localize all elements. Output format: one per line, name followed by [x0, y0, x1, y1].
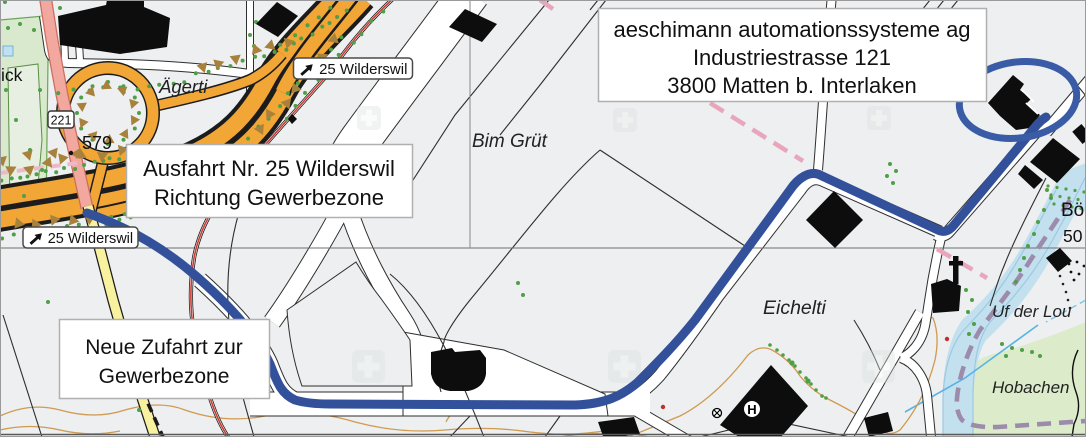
svg-text:Eichelti: Eichelti: [763, 297, 827, 319]
svg-text:221: 221: [51, 114, 72, 128]
svg-text:Richtung Gewerbezone: Richtung Gewerbezone: [154, 185, 384, 210]
svg-text:25 Wilderswil: 25 Wilderswil: [319, 61, 407, 78]
svg-text:Hobachen: Hobachen: [992, 378, 1070, 397]
svg-text:579: 579: [82, 133, 112, 153]
svg-text:Bö: Bö: [1061, 200, 1084, 221]
svg-text:Uf der Lou: Uf der Lou: [992, 302, 1072, 321]
svg-text:3800 Matten b. Interlaken: 3800 Matten b. Interlaken: [667, 73, 917, 98]
svg-text:Neue Zufahrt zur: Neue Zufahrt zur: [85, 336, 243, 359]
svg-text:Industriestrasse 121: Industriestrasse 121: [693, 45, 891, 70]
svg-text:50: 50: [1063, 226, 1083, 246]
svg-text:25 Wilderswil: 25 Wilderswil: [48, 231, 133, 247]
svg-text:aeschimann automationssysteme: aeschimann automationssysteme ag: [613, 17, 970, 42]
svg-text:ick: ick: [1, 65, 23, 85]
svg-text:Bim Grüt: Bim Grüt: [472, 131, 548, 152]
svg-text:Ausfahrt Nr. 25 Wilderswil: Ausfahrt Nr. 25 Wilderswil: [143, 156, 395, 181]
svg-text:H: H: [747, 402, 756, 417]
svg-text:Gewerbezone: Gewerbezone: [99, 365, 230, 388]
svg-text:Ägerti: Ägerti: [158, 76, 208, 97]
